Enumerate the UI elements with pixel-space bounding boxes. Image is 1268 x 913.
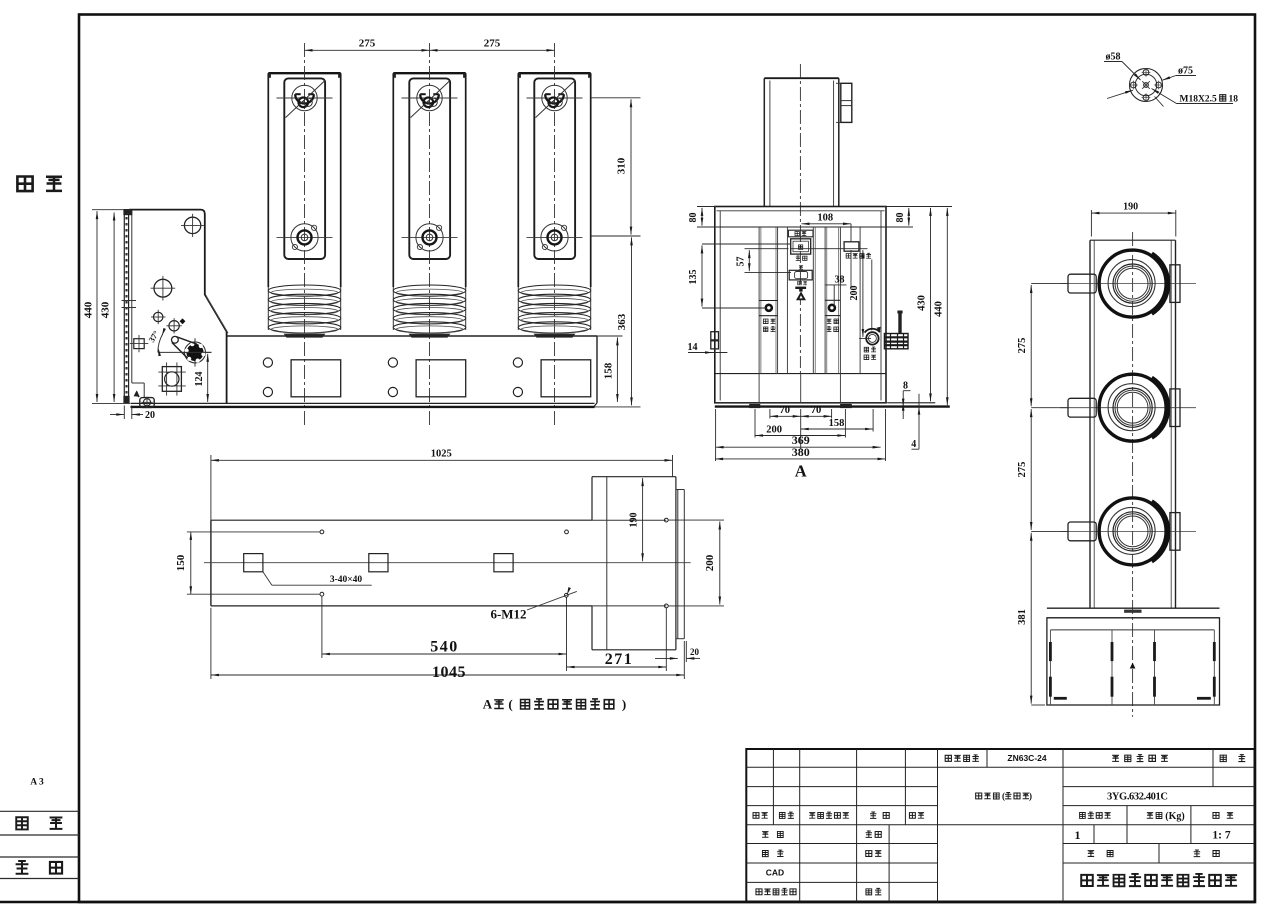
- svg-text:20: 20: [145, 410, 155, 421]
- svg-text:275: 275: [1017, 338, 1028, 354]
- svg-text:135: 135: [688, 270, 699, 285]
- svg-text:3YG.632.401C: 3YG.632.401C: [1107, 791, 1168, 802]
- svg-text:14: 14: [688, 342, 698, 353]
- svg-text:80: 80: [895, 213, 906, 223]
- svg-text:1: 1: [1075, 828, 1081, 842]
- svg-text:80: 80: [688, 213, 699, 223]
- svg-text:430: 430: [917, 295, 928, 311]
- svg-text:M18X2.5: M18X2.5: [1180, 94, 1217, 104]
- svg-text:A: A: [795, 462, 807, 481]
- svg-text:1025: 1025: [431, 449, 452, 460]
- svg-text:70: 70: [780, 405, 791, 416]
- svg-text:ø58: ø58: [1106, 52, 1121, 63]
- svg-text:1: 7: 1: 7: [1212, 830, 1230, 842]
- svg-text:(: (: [508, 697, 512, 712]
- svg-text:20: 20: [690, 647, 700, 657]
- svg-text:A 3: A 3: [30, 778, 44, 788]
- svg-text:6-M12: 6-M12: [490, 607, 526, 622]
- svg-text:150: 150: [175, 554, 187, 571]
- svg-text:540: 540: [430, 639, 459, 656]
- svg-text:18: 18: [1229, 94, 1239, 104]
- svg-text:ZN63C-24: ZN63C-24: [1007, 753, 1046, 763]
- svg-text:70: 70: [811, 405, 822, 416]
- svg-text:A: A: [483, 697, 493, 712]
- svg-text:CAD: CAD: [766, 868, 784, 878]
- svg-text:310: 310: [616, 157, 628, 174]
- svg-text:57: 57: [736, 257, 747, 267]
- svg-text:(: (: [1002, 791, 1005, 801]
- svg-text:3-40×40: 3-40×40: [330, 575, 363, 585]
- svg-text:275: 275: [359, 38, 376, 50]
- svg-text:200: 200: [704, 554, 716, 571]
- svg-text:): ): [1029, 791, 1032, 801]
- svg-text:8: 8: [903, 380, 908, 391]
- svg-text:380: 380: [792, 445, 810, 459]
- svg-text:): ): [622, 697, 626, 712]
- svg-text:363: 363: [616, 313, 628, 330]
- svg-text:275: 275: [1017, 462, 1028, 478]
- svg-text:200: 200: [766, 425, 782, 436]
- svg-text:158: 158: [829, 418, 845, 429]
- svg-text:440: 440: [82, 301, 94, 318]
- svg-text:108: 108: [817, 213, 833, 224]
- svg-text:158: 158: [603, 362, 615, 379]
- svg-text:440: 440: [933, 301, 944, 317]
- svg-text:430: 430: [99, 301, 111, 318]
- svg-text:ø75: ø75: [1178, 66, 1193, 77]
- svg-text:190: 190: [1123, 202, 1138, 213]
- svg-text:38: 38: [835, 274, 845, 285]
- svg-text:271: 271: [605, 651, 634, 668]
- svg-text:1045: 1045: [432, 664, 466, 681]
- svg-text:200: 200: [849, 286, 860, 301]
- svg-text:124: 124: [194, 372, 205, 387]
- svg-text:4: 4: [911, 439, 916, 450]
- svg-text:190: 190: [629, 513, 640, 528]
- svg-text:(Kg): (Kg): [1165, 811, 1184, 822]
- svg-text:381: 381: [1017, 609, 1028, 625]
- svg-text:275: 275: [484, 38, 501, 50]
